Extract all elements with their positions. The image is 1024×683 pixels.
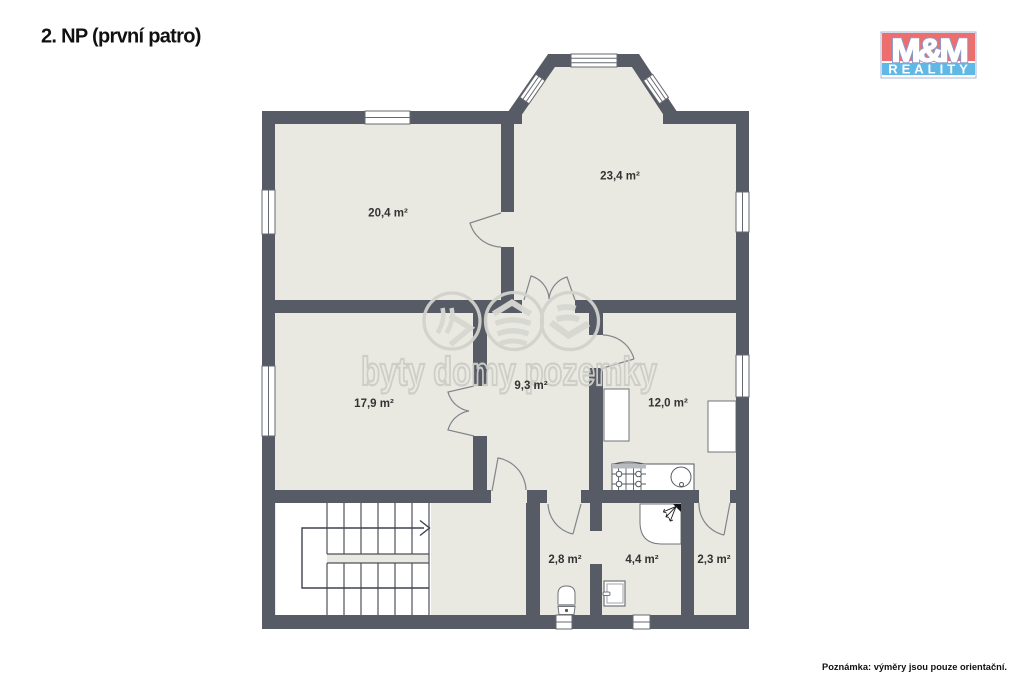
svg-text:REALITY: REALITY	[888, 62, 972, 77]
svg-text:17,9 m²: 17,9 m²	[354, 398, 394, 410]
svg-text:byty domy pozemky: byty domy pozemky	[361, 350, 658, 394]
svg-text:Poznámka: výměry jsou pouze or: Poznámka: výměry jsou pouze orientační.	[822, 662, 1007, 672]
svg-text:9,3 m²: 9,3 m²	[514, 380, 547, 392]
svg-text:2,3 m²: 2,3 m²	[697, 554, 730, 566]
svg-text:2. NP (první patro): 2. NP (první patro)	[41, 26, 201, 48]
svg-text:12,0 m²: 12,0 m²	[648, 398, 688, 410]
svg-text:2,8 m²: 2,8 m²	[548, 554, 581, 566]
svg-text:23,4 m²: 23,4 m²	[600, 171, 640, 183]
svg-text:20,4 m²: 20,4 m²	[368, 208, 408, 220]
svg-text:4,4 m²: 4,4 m²	[625, 554, 658, 566]
